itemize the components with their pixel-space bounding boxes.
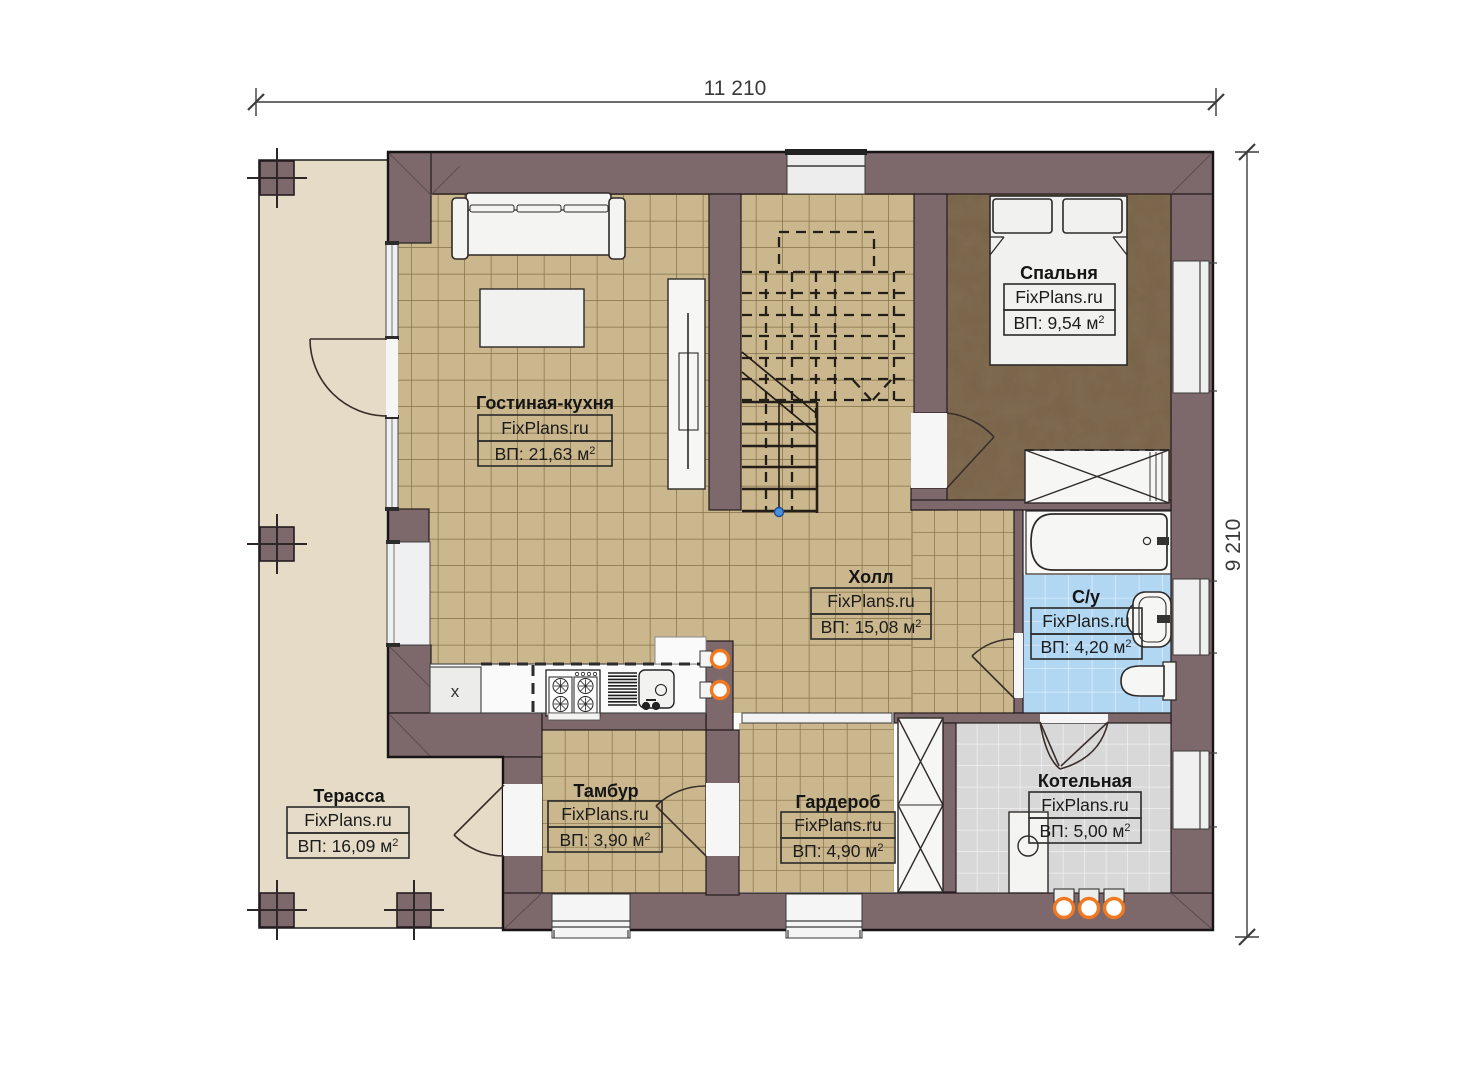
svg-text:FixPlans.ru: FixPlans.ru [1042,611,1130,631]
svg-text:ВП: 4,20 м2: ВП: 4,20 м2 [1040,637,1131,657]
svg-text:Спальня: Спальня [1020,263,1098,283]
svg-text:x: x [451,682,460,701]
svg-text:Гардероб: Гардероб [795,792,880,812]
svg-text:ВП: 9,54 м2: ВП: 9,54 м2 [1013,313,1104,333]
svg-text:FixPlans.ru: FixPlans.ru [1015,287,1103,307]
svg-text:Терасса: Терасса [313,786,385,806]
svg-text:FixPlans.ru: FixPlans.ru [827,591,915,611]
svg-text:FixPlans.ru: FixPlans.ru [1041,795,1129,815]
svg-text:Гостиная-кухня: Гостиная-кухня [476,393,614,413]
svg-text:Котельная: Котельная [1038,771,1132,791]
svg-text:FixPlans.ru: FixPlans.ru [794,815,882,835]
svg-text:ВП: 16,09 м2: ВП: 16,09 м2 [298,836,399,856]
svg-text:Холл: Холл [848,567,893,587]
svg-text:ВП: 3,90 м2: ВП: 3,90 м2 [559,830,650,850]
svg-text:ВП: 5,00 м2: ВП: 5,00 м2 [1039,821,1130,841]
svg-text:ВП: 21,63 м2: ВП: 21,63 м2 [495,444,596,464]
svg-text:Тамбур: Тамбур [573,781,638,801]
svg-text:9 210: 9 210 [1222,519,1245,572]
svg-text:FixPlans.ru: FixPlans.ru [561,804,649,824]
svg-text:ВП: 4,90 м2: ВП: 4,90 м2 [792,841,883,861]
svg-text:FixPlans.ru: FixPlans.ru [501,418,589,438]
svg-text:FixPlans.ru: FixPlans.ru [304,810,392,830]
svg-text:ВП: 15,08 м2: ВП: 15,08 м2 [821,617,922,637]
svg-text:11 210: 11 210 [704,77,767,100]
svg-text:С/у: С/у [1072,587,1100,607]
